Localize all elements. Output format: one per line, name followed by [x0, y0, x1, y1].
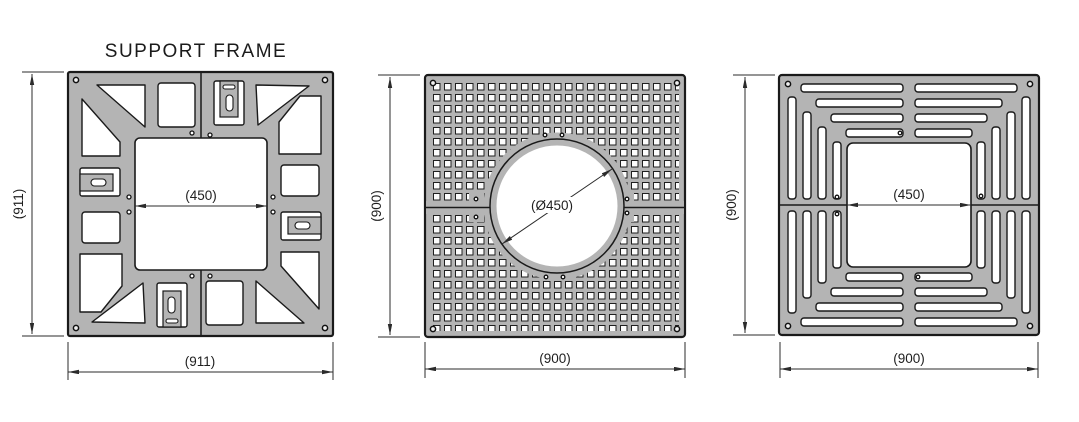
dim-width-perforated-grate: (900)	[539, 351, 571, 366]
technical-drawing: SUPPORT FRAME	[0, 0, 1079, 422]
support-frame-view	[68, 72, 333, 336]
dim-height-perforated-grate: (900)	[369, 190, 384, 222]
corner-bolt-icon	[73, 325, 78, 330]
square-opening	[135, 138, 267, 270]
dim-opening-slotted-grate: (450)	[893, 187, 925, 202]
corner-bolt-icon	[430, 80, 435, 85]
dim-diameter-perforated-grate: (Ø450)	[531, 198, 573, 213]
dim-width-support-frame: (911)	[185, 354, 216, 369]
corner-bolt-icon	[73, 77, 78, 82]
corner-bolt-icon	[674, 326, 679, 331]
drawing-sheet: SUPPORT FRAME	[0, 0, 1079, 422]
corner-bolt-icon	[785, 81, 790, 86]
dim-height-slotted-grate: (900)	[724, 189, 739, 221]
dim-width-slotted-grate: (900)	[893, 351, 925, 366]
dim-opening-support-frame: (450)	[185, 188, 217, 203]
dim-height-support-frame: (911)	[11, 189, 26, 220]
corner-bolt-icon	[430, 326, 435, 331]
page-title: SUPPORT FRAME	[105, 41, 287, 62]
corner-bolt-icon	[674, 80, 679, 85]
